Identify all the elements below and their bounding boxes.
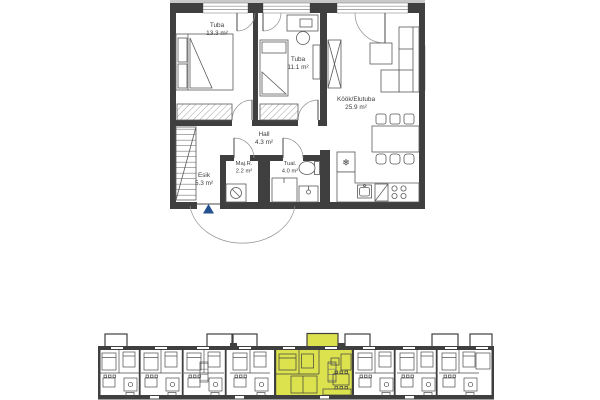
svg-text:Tuba: Tuba (291, 56, 306, 63)
desk-chair (297, 32, 310, 45)
building-site-plan (95, 328, 497, 400)
svg-text:13.3 m²: 13.3 m² (206, 30, 228, 37)
apartment-floor-plan: ❄ (160, 0, 430, 250)
shelf (313, 45, 320, 79)
dining-set (372, 114, 419, 164)
balconies (105, 334, 492, 347)
svg-text:Tual.: Tual. (284, 161, 297, 167)
svg-text:5.3 m²: 5.3 m² (195, 180, 213, 187)
room-label-majr: Maj.R. 2.2 m² (236, 161, 253, 175)
svg-text:11.1 m²: 11.1 m² (287, 64, 308, 71)
shower (272, 178, 297, 202)
highlighted-balcony (307, 334, 338, 348)
wardrobe (260, 104, 298, 120)
room-label-tual: Tual. 4.0 m² (282, 161, 298, 175)
fridge-snowflake-icon: ❄ (342, 158, 350, 168)
sink (358, 184, 372, 198)
svg-text:2.2 m²: 2.2 m² (236, 169, 252, 175)
svg-text:Tuba: Tuba (210, 22, 225, 29)
room-label-tuba1: Tuba 13.3 m² (206, 22, 228, 37)
svg-text:4.3 m²: 4.3 m² (255, 139, 273, 146)
living-kitchen-furniture: ❄ (328, 27, 419, 202)
entrance-direction-icon (203, 204, 214, 214)
svg-text:Hall: Hall (258, 131, 269, 138)
bathroom-sink (299, 186, 318, 202)
wardrobe (177, 104, 232, 120)
floorplan-page: ❄ (0, 0, 600, 400)
room-label-hall: Hall 4.3 m² (255, 131, 273, 146)
dining-table (372, 126, 419, 152)
utility-furniture (226, 184, 246, 202)
room-label-kook-elutuba: Köök/Elutuba 25.9 m² (337, 96, 375, 111)
hallway-furniture (176, 127, 196, 200)
svg-text:Esik: Esik (198, 172, 211, 179)
svg-text:Köök/Elutuba: Köök/Elutuba (337, 96, 375, 103)
room-label-tuba2: Tuba 11.1 m² (287, 56, 308, 71)
toilet (299, 162, 320, 175)
room-label-esik: Esik 5.3 m² (195, 172, 213, 187)
svg-text:4.0 m²: 4.0 m² (282, 169, 298, 175)
svg-text:25.9 m²: 25.9 m² (345, 104, 367, 111)
coffee-table (370, 43, 392, 64)
bedroom1-furniture (176, 34, 233, 120)
svg-text:Maj.R.: Maj.R. (236, 161, 253, 167)
